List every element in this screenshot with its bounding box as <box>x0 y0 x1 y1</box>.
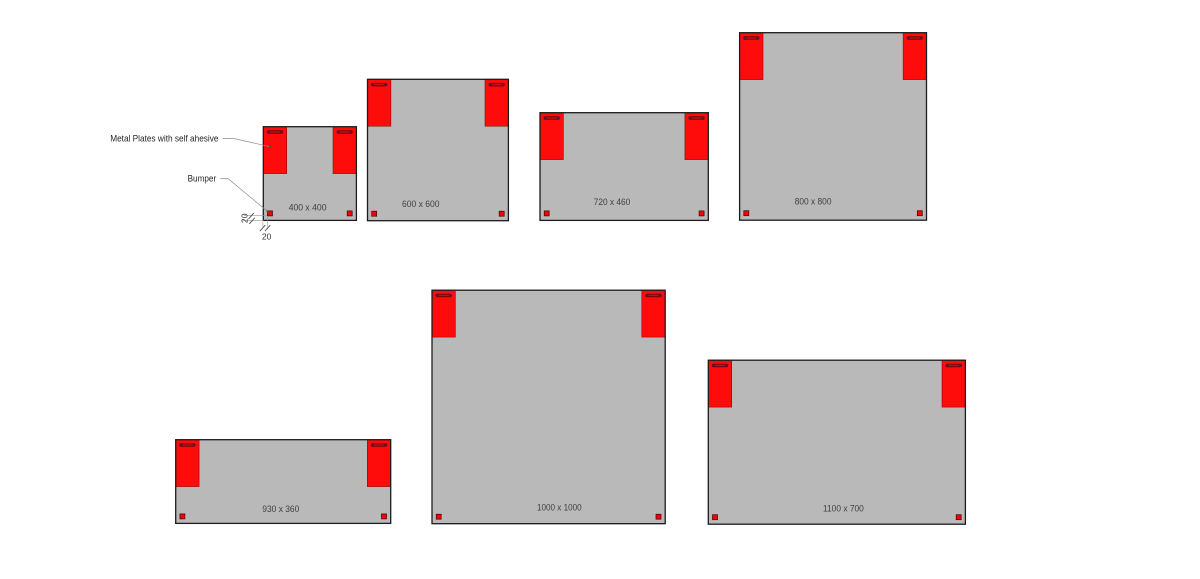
svg-text:400 x 400: 400 x 400 <box>289 203 327 213</box>
svg-text:20: 20 <box>240 213 250 223</box>
svg-text:20: 20 <box>262 231 272 241</box>
svg-text:1100 x 700: 1100 x 700 <box>823 503 864 513</box>
svg-text:1000 x 1000: 1000 x 1000 <box>537 502 582 512</box>
svg-text:720 x 460: 720 x 460 <box>594 197 631 207</box>
svg-text:Bumper: Bumper <box>188 173 217 183</box>
svg-text:930 x 360: 930 x 360 <box>262 504 299 514</box>
svg-text:Metal Plates with self ahesive: Metal Plates with self ahesive <box>110 133 218 143</box>
svg-text:800 x 800: 800 x 800 <box>795 197 832 207</box>
svg-text:600 x 600: 600 x 600 <box>402 199 440 209</box>
